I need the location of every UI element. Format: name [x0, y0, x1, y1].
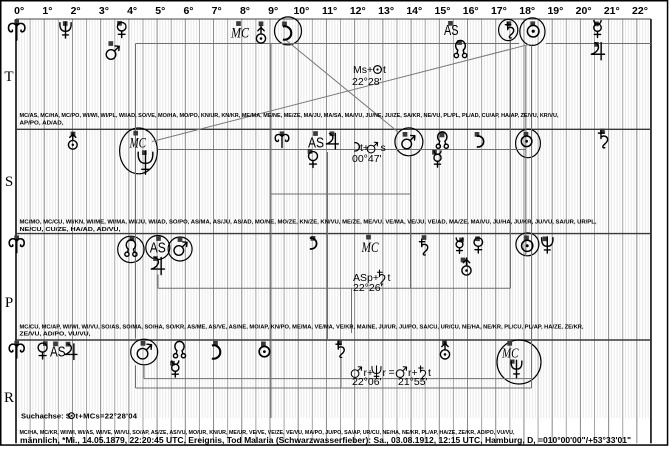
svg-text:MC: MC: [501, 347, 519, 362]
svg-text:t: t: [388, 272, 391, 284]
svg-text:NE/CU, CU/ZE, HA/AD, AD/VU,: NE/CU, CU/ZE, HA/AD, AD/VU,: [20, 227, 122, 233]
svg-text:männlich, *Mi., 14.05.1879, 22: männlich, *Mi., 14.05.1879, 22:20:45 UTC…: [20, 435, 631, 445]
svg-text:19°: 19°: [547, 5, 563, 17]
svg-text:AP/PO, AD/AD,: AP/PO, AD/AD,: [20, 121, 65, 127]
svg-text:22°28': 22°28': [352, 76, 382, 88]
svg-text:t: t: [428, 367, 431, 379]
svg-text:22°26': 22°26': [353, 282, 383, 294]
svg-text:17°: 17°: [491, 5, 507, 17]
svg-text:3°: 3°: [99, 5, 109, 17]
svg-text:t+MCs=22°28'04: t+MCs=22°28'04: [76, 412, 138, 421]
svg-text:11°: 11°: [322, 5, 337, 17]
svg-text:7°: 7°: [212, 5, 222, 17]
svg-text:18°: 18°: [519, 5, 535, 17]
svg-text:21°55': 21°55': [398, 376, 428, 388]
svg-text:22°: 22°: [632, 5, 648, 17]
svg-text:T: T: [4, 69, 13, 85]
svg-text:AS: AS: [150, 240, 166, 257]
svg-text:6°: 6°: [183, 5, 193, 17]
svg-text:0°: 0°: [14, 5, 24, 17]
svg-text:AS: AS: [444, 22, 459, 39]
svg-text:1°: 1°: [42, 5, 52, 17]
svg-text:MC: MC: [361, 240, 379, 256]
svg-text:12°: 12°: [350, 5, 366, 17]
svg-text:MC: MC: [230, 26, 250, 42]
svg-text:2°: 2°: [71, 5, 81, 17]
svg-text:15°: 15°: [435, 5, 451, 17]
svg-text:13°: 13°: [378, 5, 394, 17]
svg-text:MC: MC: [129, 136, 147, 152]
svg-text:=: =: [389, 367, 395, 379]
svg-text:MC/CU, MC/AP, WI/WI, WI/VU, SO: MC/CU, MC/AP, WI/WI, WI/VU, SO/AS, SO/MA…: [20, 324, 585, 330]
svg-text:P: P: [5, 295, 13, 311]
svg-text:16°: 16°: [463, 5, 479, 17]
svg-text:9°: 9°: [268, 5, 278, 17]
svg-text:20°: 20°: [576, 5, 592, 17]
svg-text:r: r: [383, 367, 387, 379]
svg-text:Suchachse: S: Suchachse: S: [21, 412, 71, 421]
svg-text:ZE/VU, AD/PO, VU/VU,: ZE/VU, AD/PO, VU/VU,: [20, 332, 92, 338]
svg-text:10°: 10°: [293, 5, 309, 17]
svg-text:14°: 14°: [406, 5, 422, 17]
svg-text:MC/AS, MC/HA, MC/PO, WI/WI, WI: MC/AS, MC/HA, MC/PO, WI/WI, WI/PL, WI/AD…: [20, 113, 559, 119]
svg-text:AS: AS: [50, 345, 66, 361]
svg-text:00°47': 00°47': [352, 153, 382, 165]
svg-text:Ms+: Ms+: [353, 64, 373, 76]
svg-text:AS: AS: [308, 135, 324, 152]
svg-text:8°: 8°: [240, 5, 250, 17]
svg-text:t: t: [383, 64, 386, 76]
svg-text:21°: 21°: [604, 5, 620, 17]
svg-text:5°: 5°: [155, 5, 165, 17]
svg-text:22°06': 22°06': [352, 376, 382, 388]
svg-text:MC/MO, MC/CU, WI/KN, WI/ME, WI: MC/MO, MC/CU, WI/KN, WI/ME, WI/MA, WI/JU…: [20, 220, 598, 226]
svg-text:R: R: [4, 390, 14, 406]
svg-text:S: S: [5, 174, 13, 190]
svg-text:4°: 4°: [127, 5, 137, 17]
